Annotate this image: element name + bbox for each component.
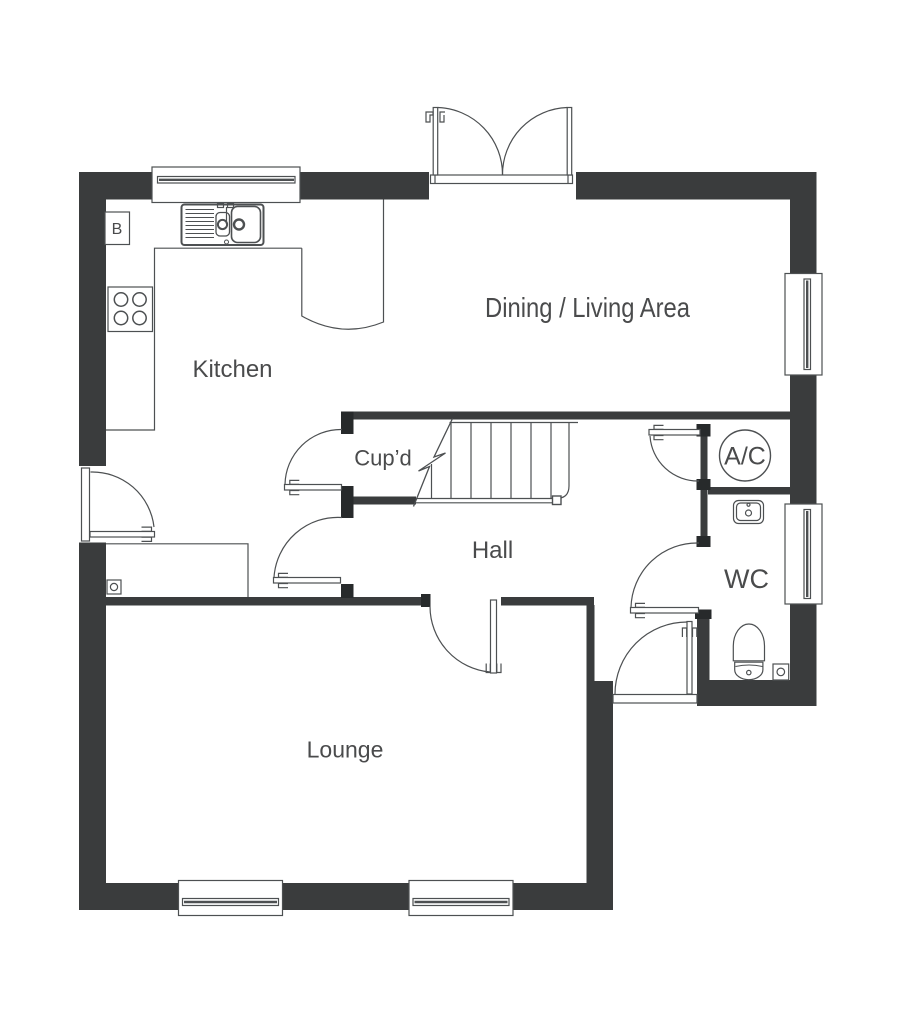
svg-text:B: B <box>112 221 123 238</box>
svg-text:A/C: A/C <box>724 443 766 471</box>
svg-text:Kitchen: Kitchen <box>192 356 272 383</box>
svg-text:Hall: Hall <box>472 537 513 564</box>
svg-text:Lounge: Lounge <box>307 737 384 763</box>
svg-text:WC: WC <box>724 564 769 594</box>
svg-text:Dining / Living Area: Dining / Living Area <box>485 291 690 323</box>
svg-text:Cup’d: Cup’d <box>354 446 411 471</box>
